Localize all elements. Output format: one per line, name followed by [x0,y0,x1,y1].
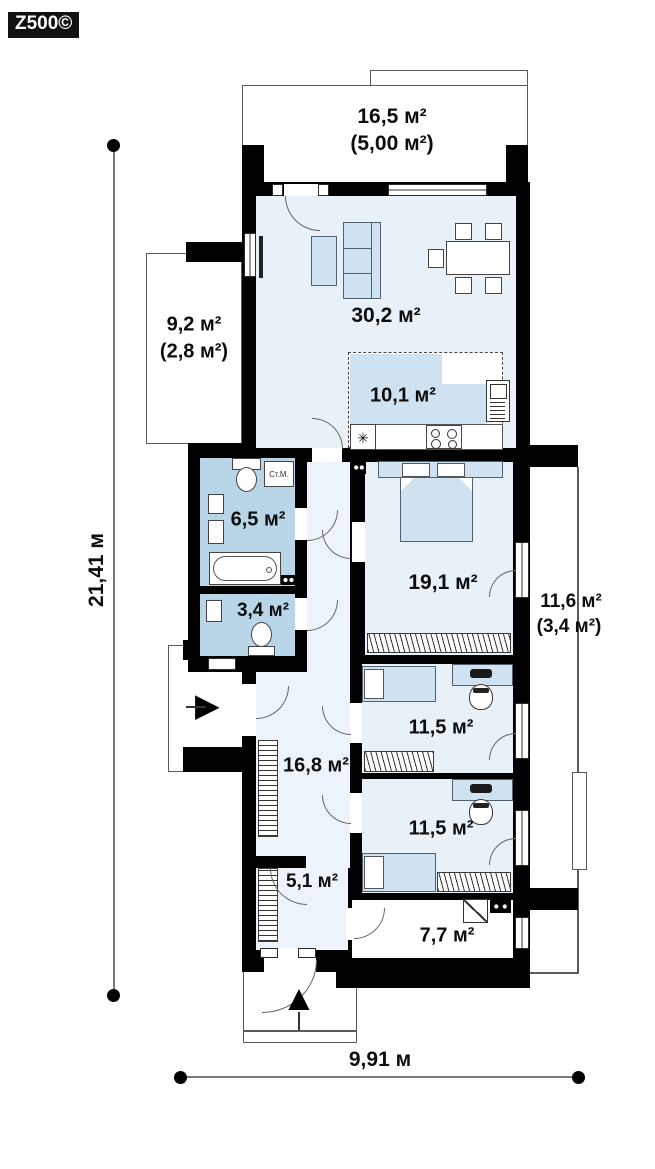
radiator-icon [259,236,263,278]
terrace-left-area-label: 9,2 м² [167,314,222,337]
window-utility [515,917,529,949]
wall-stub-right-lower [530,888,578,910]
horizontal-dimension-label: 9,91 м [349,1048,411,1072]
terrace-right-bottom-line [530,972,578,974]
wall-stub-left-terrace [186,242,242,262]
shaft-icon [281,575,296,585]
terrace-pillar-right [506,145,528,182]
living-room-area-label: 30,2 м² [351,304,420,328]
door-opening-wc [295,598,307,630]
terrace-door-frame [318,184,329,196]
wardrobe [437,872,511,892]
balcony-door-bedroom-main [515,542,529,598]
door-opening-bedroom-main [352,522,365,562]
utility-area-label: 7,7 м² [420,925,475,948]
door-opening-hall-porch [242,684,256,736]
boiler-icon [463,899,488,923]
terrace-right-area-secondary-label: (3,4 м²) [537,616,602,638]
dining-chair [485,223,502,240]
desk-lamp-icon [470,784,492,793]
dining-chair [485,277,502,294]
z500-logo: Z500© [8,12,79,38]
toilet [248,620,274,656]
pillow [402,463,430,477]
dimension-dot [107,139,120,152]
terrace-pillar-left [242,145,264,182]
pillow [437,463,465,477]
wall-stub-porch-bottom [183,747,242,772]
dimension-dot [107,989,120,1002]
wc-area-label: 3,4 м² [237,600,289,622]
window-living-left [244,233,256,277]
corridor [307,462,350,672]
wardrobe [364,751,434,772]
bathtub [209,552,281,585]
terrace-top-step [370,70,528,86]
door-opening-kitchen-corridor [312,448,342,462]
vertical-dimension-label: 21,41 м [85,533,109,607]
sofa [343,222,381,299]
kitchen-area-label: 10,1 м² [370,385,436,408]
dining-chair [455,277,472,294]
door-opening-bedroom-1 [350,703,362,743]
entry-area-label: 5,1 м² [286,871,338,893]
window-living-top [388,184,487,196]
dimension-dot [572,1071,585,1084]
window-wc [208,658,236,670]
house-wall-utility-bottom [336,958,530,988]
entrance-arrow-stem [298,1012,300,1030]
door-opening-terrace [284,184,318,196]
electric-panel-icon [352,461,366,474]
entrance-door-frame [260,948,278,958]
pillow [364,669,384,699]
washer-icon [490,900,511,913]
fridge-icon [486,380,510,422]
floor-plan: Z500© 21,41 м 9,91 м ✳ [0,0,655,1169]
dimension-dot [174,1071,187,1084]
terrace-door-frame [272,184,283,196]
toilet [232,458,260,492]
hall-wardrobe [258,740,278,837]
horizontal-dimension-line [180,1076,578,1078]
bathroom-cabinet [208,520,224,544]
washing-machine: Ст.М. [264,461,294,487]
kitchen-sink: ✳ [350,424,376,450]
balcony-door-bedroom-1 [515,703,529,759]
door-opening-hall-entry [306,856,350,868]
bedroom-main-area-label: 19,1 м² [408,571,477,595]
bedroom-2-area-label: 11,5 м² [409,818,474,841]
wc-sink [206,600,222,622]
terrace-right-bench-outline [572,772,587,870]
wardrobe [367,633,511,653]
entrance-door-frame [298,948,316,958]
terrace-top-area-label: 16,5 м² [357,105,426,129]
door-opening-bedroom-2 [350,793,362,833]
door-opening-bathroom [295,508,307,540]
desk-lamp-icon [470,669,492,678]
dining-table [446,241,510,275]
stove-icon [426,425,462,449]
dining-chair [428,249,444,268]
pillow [364,856,384,889]
bathroom-cabinet [208,494,224,514]
balcony-door-bedroom-2 [515,810,529,866]
coffee-table [311,236,337,286]
terrace-left-area-secondary-label: (2,8 м²) [160,341,228,364]
bedroom-1-area-label: 11,5 м² [409,717,474,740]
terrace-top-area-secondary-label: (5,00 м²) [350,132,433,156]
hall-area-label: 16,8 м² [283,755,349,778]
dining-chair [455,223,472,240]
bathroom-area-label: 6,5 м² [231,509,286,532]
office-chair [469,684,493,710]
vertical-dimension-line [113,145,115,995]
terrace-right-area-label: 11,6 м² [540,591,602,613]
porch-bottom-step-line [243,1030,357,1032]
entrance-arrow-side-stem [186,706,206,708]
wall-stub-right-upper [530,445,578,467]
double-bed [400,477,473,542]
